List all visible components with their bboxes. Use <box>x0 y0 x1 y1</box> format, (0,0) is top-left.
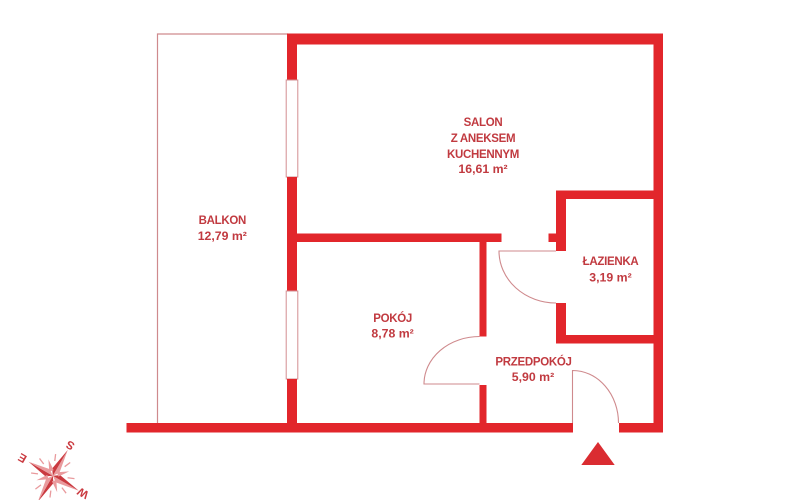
svg-text:KUCHENNYM: KUCHENNYM <box>447 149 519 161</box>
svg-text:16,61 m²: 16,61 m² <box>458 162 507 176</box>
svg-text:SALON: SALON <box>464 117 503 129</box>
svg-text:8,78 m²: 8,78 m² <box>371 327 413 341</box>
svg-text:Z ANEKSEM: Z ANEKSEM <box>451 133 516 145</box>
svg-text:PRZEDPOKÓJ: PRZEDPOKÓJ <box>495 356 571 369</box>
svg-text:POKÓJ: POKÓJ <box>373 312 412 325</box>
svg-text:ŁAZIENKA: ŁAZIENKA <box>583 256 639 268</box>
svg-text:3,19 m²: 3,19 m² <box>589 271 631 285</box>
svg-text:12,79 m²: 12,79 m² <box>198 229 247 243</box>
svg-text:5,90 m²: 5,90 m² <box>512 370 554 384</box>
svg-text:BALKON: BALKON <box>199 215 246 227</box>
